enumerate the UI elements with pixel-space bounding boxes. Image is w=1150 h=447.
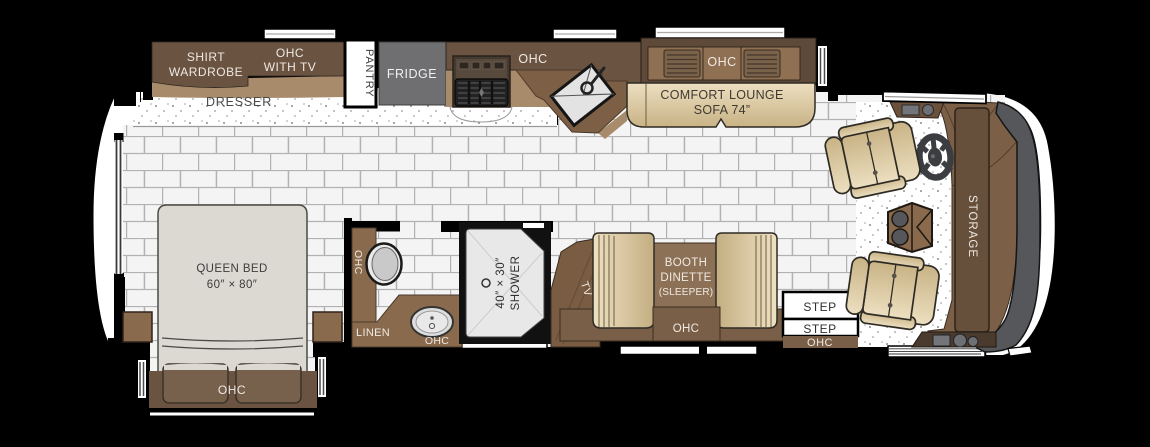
svg-text:FRIDGE: FRIDGE xyxy=(387,67,437,81)
svg-text:STEP: STEP xyxy=(803,322,836,336)
svg-text:LINEN: LINEN xyxy=(356,327,390,339)
svg-text:SHIRT: SHIRT xyxy=(187,50,225,64)
svg-text:SHOWER: SHOWER xyxy=(510,256,522,311)
svg-text:60″ × 80″: 60″ × 80″ xyxy=(207,279,257,291)
svg-text:OHC: OHC xyxy=(276,46,304,60)
svg-text:STORAGE: STORAGE xyxy=(966,195,978,258)
svg-text:OHC: OHC xyxy=(673,323,699,335)
svg-text:WARDROBE: WARDROBE xyxy=(169,65,243,79)
svg-text:OHC: OHC xyxy=(218,383,246,397)
svg-text:COMFORT LOUNGE: COMFORT LOUNGE xyxy=(660,88,783,102)
svg-text:40″ × 30″: 40″ × 30″ xyxy=(495,257,507,308)
svg-text:(SLEEPER): (SLEEPER) xyxy=(659,287,714,298)
svg-text:STEP: STEP xyxy=(803,300,836,314)
svg-text:BOOTH: BOOTH xyxy=(665,257,707,269)
svg-text:OHC: OHC xyxy=(425,335,449,347)
svg-text:OHC: OHC xyxy=(807,337,833,349)
svg-text:WITH TV: WITH TV xyxy=(264,60,317,74)
svg-text:OHC: OHC xyxy=(352,250,364,275)
svg-text:PANTRY: PANTRY xyxy=(363,49,375,97)
svg-text:DRESSER: DRESSER xyxy=(206,95,272,109)
svg-text:SOFA 74”: SOFA 74” xyxy=(694,103,751,117)
svg-text:OHC: OHC xyxy=(707,55,736,69)
svg-text:QUEEN BED: QUEEN BED xyxy=(196,263,267,275)
svg-text:OHC: OHC xyxy=(518,52,547,66)
svg-text:DINETTE: DINETTE xyxy=(660,272,711,284)
